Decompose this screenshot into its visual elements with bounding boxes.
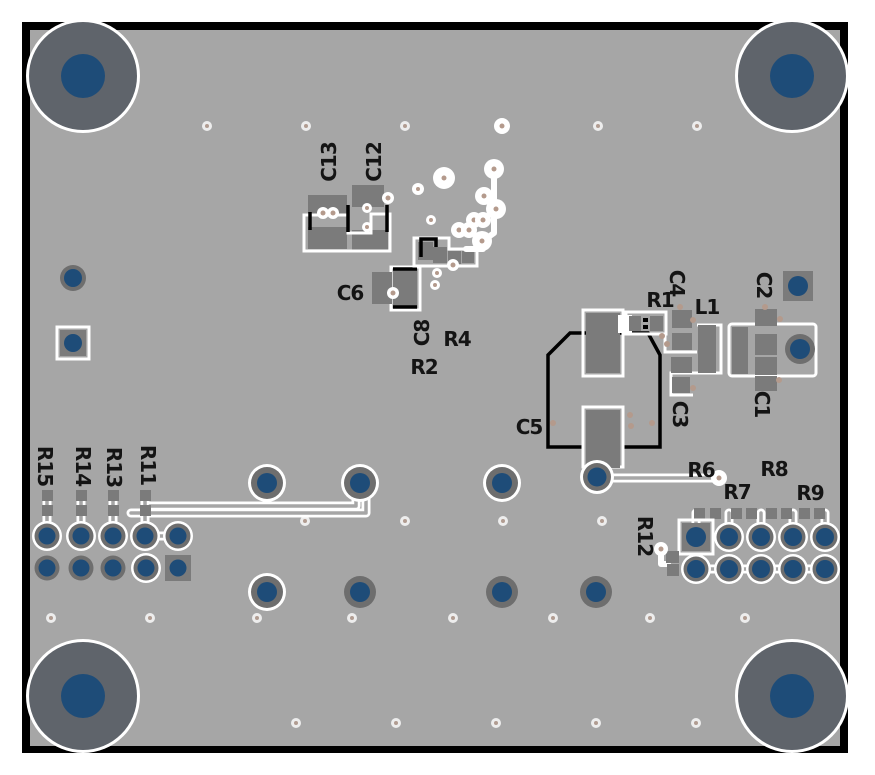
- designator-c8: C8: [410, 320, 434, 347]
- designator-r2: R2: [410, 355, 437, 379]
- designator-c6: C6: [337, 281, 364, 305]
- designator-r15: R15: [33, 446, 57, 486]
- board-substrate: [30, 30, 840, 746]
- designator-c13: C13: [317, 142, 341, 182]
- mounting-hole-top-right: [735, 19, 849, 133]
- pcb-board-drawing: C13 C12 C6 C8 R4 R2 C4 R1 L1 C2 C1 C3 C5…: [0, 0, 875, 775]
- pcb-page: C13 C12 C6 C8 R4 R2 C4 R1 L1 C2 C1 C3 C5…: [0, 0, 875, 775]
- designator-r11: R11: [136, 445, 160, 485]
- designator-c1: C1: [750, 391, 774, 418]
- designator-c2: C2: [752, 272, 776, 299]
- designator-r12: R12: [633, 516, 657, 556]
- component-c6: [372, 267, 420, 310]
- designator-r14: R14: [71, 446, 95, 486]
- designator-r9: R9: [796, 481, 823, 505]
- designator-l1: L1: [695, 295, 720, 319]
- mounting-hole-bottom-right: [735, 639, 849, 753]
- designator-c12: C12: [362, 142, 386, 182]
- designator-r7: R7: [723, 480, 750, 504]
- designator-c5: C5: [516, 415, 543, 439]
- designator-c3: C3: [668, 401, 692, 428]
- designator-r13: R13: [102, 447, 126, 487]
- board-outline: [22, 22, 848, 753]
- mounting-hole-bottom-left: [26, 639, 140, 753]
- designator-r4: R4: [443, 327, 470, 351]
- mounting-hole-top-left: [26, 19, 140, 133]
- designator-r1: R1: [646, 288, 673, 312]
- designator-r8: R8: [760, 457, 787, 481]
- designator-r6: R6: [687, 458, 714, 482]
